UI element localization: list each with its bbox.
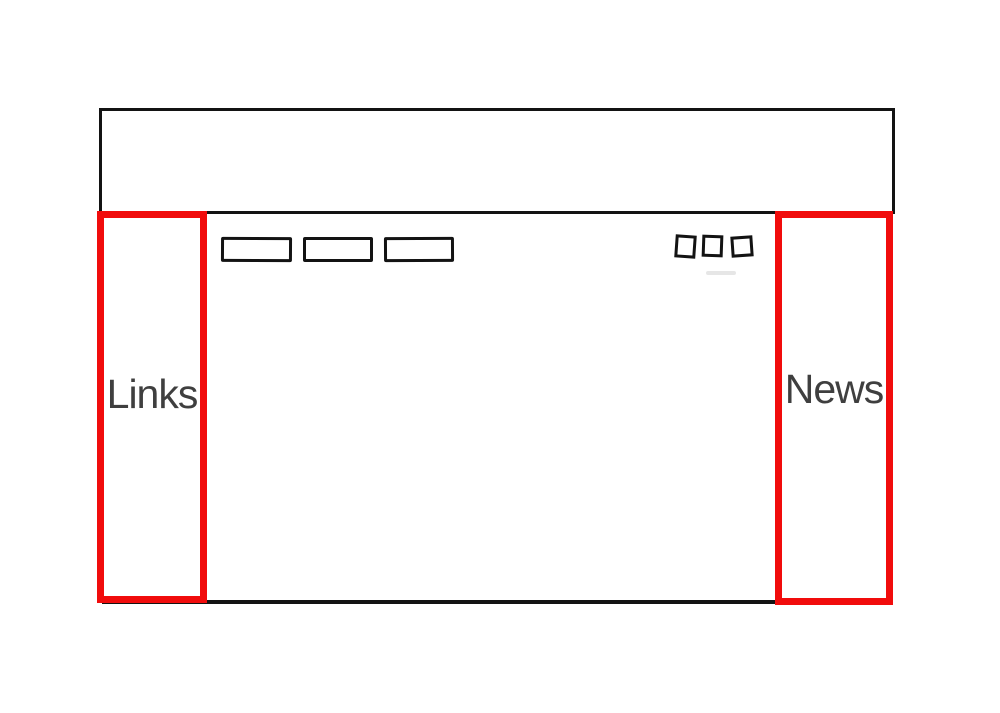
nav-button-placeholder-1[interactable] xyxy=(221,237,292,262)
content-area-box xyxy=(102,211,892,604)
nav-button-placeholder-2[interactable] xyxy=(303,237,373,262)
links-sidebar-label: Links xyxy=(97,374,207,415)
wireframe-canvas: Links News xyxy=(0,0,1000,713)
news-sidebar-label: News xyxy=(775,369,893,410)
small-box-icon[interactable] xyxy=(730,235,753,257)
header-banner-box xyxy=(99,108,895,214)
small-box-icon[interactable] xyxy=(674,234,697,258)
nav-button-placeholder-3[interactable] xyxy=(384,237,454,262)
pencil-smudge xyxy=(706,271,736,275)
small-box-icon[interactable] xyxy=(702,235,724,258)
